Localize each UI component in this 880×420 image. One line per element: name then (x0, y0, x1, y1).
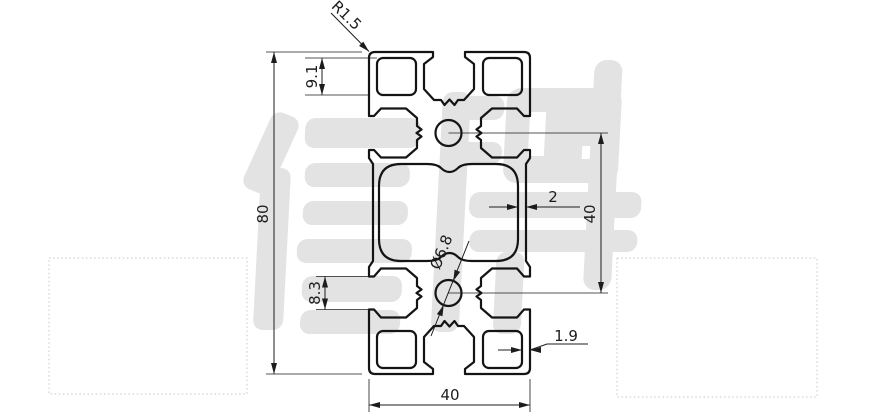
dim-side-slot-opening-label: 8.3 (306, 281, 324, 305)
dim-mid-wall-thickness-label: 2 (548, 188, 558, 206)
dim-core-distance-label: 40 (581, 204, 599, 223)
dim-slot-chamber-height: 9.1 (303, 58, 377, 95)
chamber-hollow-top-left (377, 58, 416, 95)
dim-overall-width: 40 (369, 379, 530, 412)
dim-corner-radius: R1.5 (328, 0, 371, 54)
technical-drawing-canvas: R1.5 9.1 80 2 (0, 0, 880, 420)
dim-slot-chamber-height-label: 9.1 (303, 65, 321, 89)
dim-chamber-wall-thickness-label: 1.9 (554, 327, 578, 345)
dim-overall-height-label: 80 (254, 204, 272, 223)
chamber-hollow-bottom-left (377, 331, 416, 368)
dotted-frame-left (49, 258, 247, 394)
dotted-frame-right (617, 258, 817, 397)
dim-overall-width-label: 40 (440, 386, 459, 404)
profile-drawing-svg: R1.5 9.1 80 2 (0, 0, 880, 420)
